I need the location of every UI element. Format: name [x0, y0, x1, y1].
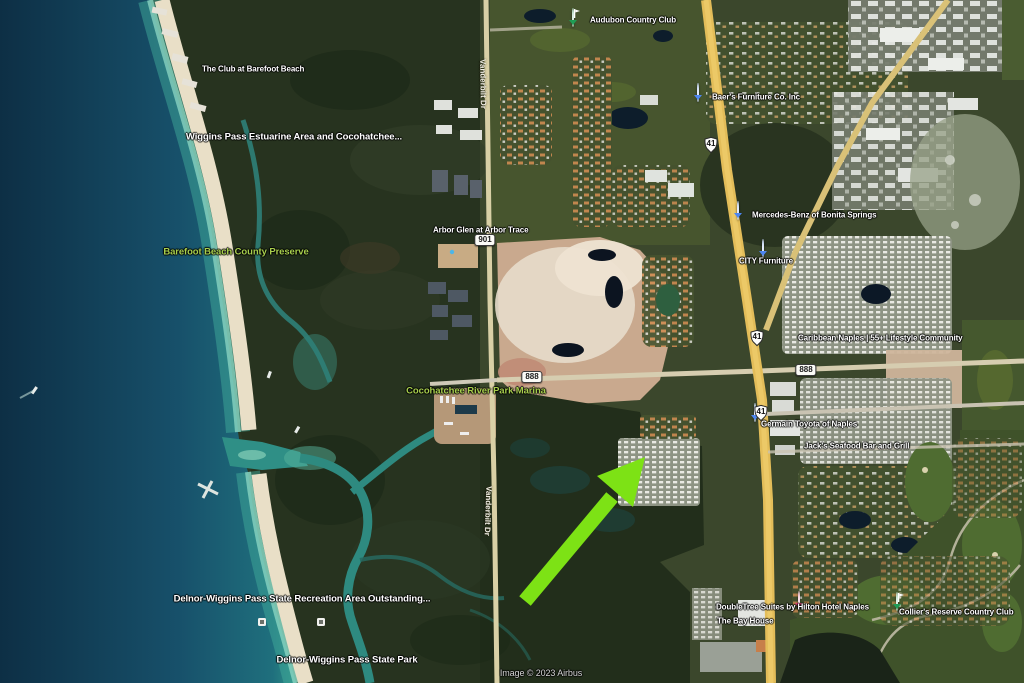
route-shield-us41-north: 41 [703, 136, 720, 154]
furniture-store-pin-icon[interactable] [697, 83, 699, 102]
park-label-barefoot-beach-preserve[interactable]: Barefoot Beach County Preserve [163, 247, 308, 258]
route-shield-901: 901 [474, 234, 495, 246]
poi-label-city-furniture[interactable]: CITY Furniture [739, 257, 793, 266]
park-label-cocohatchee-marina[interactable]: Cocohatchee River Park Marina [406, 386, 546, 397]
park-label-delnor-park[interactable]: Delnor-Wiggins Pass State Park [276, 655, 417, 666]
poi-label-doubletree[interactable]: DoubleTree Suites by Hilton Hotel Naples [716, 603, 869, 612]
route-shield-888-east: 888 [795, 364, 816, 376]
car-dealer-pin-icon[interactable] [737, 201, 739, 220]
poi-label-club-barefoot-beach[interactable]: The Club at Barefoot Beach [202, 65, 304, 74]
map-canvas[interactable]: The Club at Barefoot Beach Wiggins Pass … [0, 0, 1024, 683]
golf-flag-pin-icon[interactable] [572, 8, 574, 27]
imagery-attribution: Image © 2023 Airbus [500, 668, 582, 678]
road-label-vanderbilt-dr-north: Vanderbilt Dr [478, 59, 488, 109]
park-label-delnor-recreation[interactable]: Delnor-Wiggins Pass State Recreation Are… [174, 594, 431, 605]
route-shield-us41-south: 41 [753, 404, 770, 422]
poi-label-germain-toyota[interactable]: Germain Toyota of Naples [761, 420, 857, 429]
road-label-vanderbilt-dr-south: Vanderbilt Dr [483, 486, 494, 536]
furniture-store-pin-icon[interactable] [762, 239, 764, 258]
poi-label-jacks-seafood[interactable]: Jack's Seafood Bar and Grill [804, 442, 909, 451]
poi-label-bay-house[interactable]: The Bay House [717, 617, 774, 626]
poi-label-audubon-country-club[interactable]: Audubon Country Club [590, 16, 676, 25]
golf-flag-pin-icon[interactable] [896, 592, 898, 611]
poi-label-mercedes-benz[interactable]: Mercedes-Benz of Bonita Springs [752, 211, 876, 220]
poi-label-caribbean-naples[interactable]: Caribbean Naples | 55+ Lifestyle Communi… [798, 334, 963, 343]
poi-label-baers-furniture[interactable]: Baer's Furniture Co. Inc [712, 93, 800, 102]
poi-label-colliers-reserve[interactable]: Collier's Reserve Country Club [899, 608, 1014, 617]
route-shield-888-west: 888 [521, 371, 542, 383]
poi-label-wiggins-pass-estuarine[interactable]: Wiggins Pass Estuarine Area and Cocohatc… [186, 132, 402, 143]
route-shield-us41-mid: 41 [749, 329, 766, 347]
